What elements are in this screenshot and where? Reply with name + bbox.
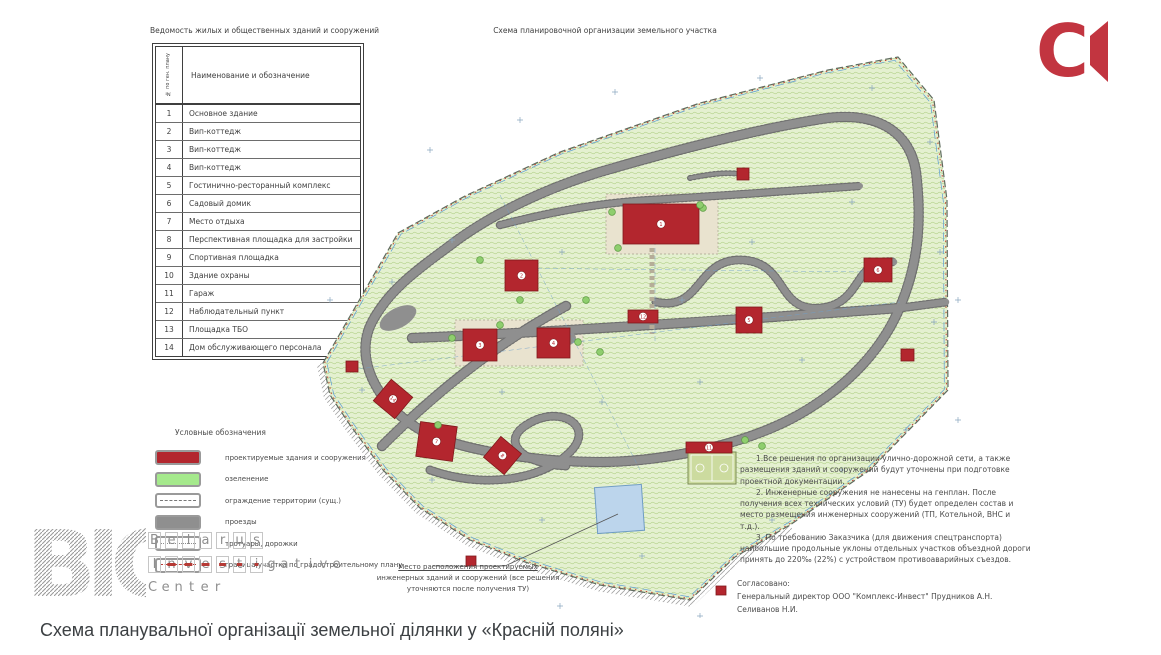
approval-name: Селиванов Н.И.: [737, 604, 992, 617]
watermark-letter: i: [306, 557, 315, 572]
notes-block: 1.Все решения по организации улично-доро…: [740, 453, 1032, 566]
swatch-buildings: [155, 450, 201, 465]
row-number: 12: [156, 303, 183, 320]
drawing-sheet: Ведомость жилых и общественных зданий и …: [0, 0, 1161, 655]
swatch-greenery: [155, 472, 201, 487]
building: 4: [537, 328, 570, 358]
tree-icon: [477, 257, 484, 264]
bic-logo: BIC: [26, 512, 146, 612]
watermark-letter: t: [293, 557, 302, 572]
engineering-site-pond: [594, 484, 644, 533]
watermark-letter: e: [165, 532, 178, 549]
tree-icon: [597, 349, 604, 356]
tree-icon: [609, 209, 616, 216]
svg-text:11: 11: [706, 445, 712, 451]
watermark-letter: e: [332, 557, 341, 572]
row-number: 5: [156, 177, 183, 194]
building: 3: [463, 329, 497, 361]
building: 11: [686, 442, 732, 453]
watermark-letter: u: [233, 532, 246, 549]
watermark-letter: s: [250, 532, 263, 549]
legend-item: проектируемые здания и сооружения: [155, 451, 455, 464]
watermark-letter: e: [200, 580, 209, 595]
svg-text:3: 3: [478, 343, 481, 349]
tree-icon: [759, 443, 766, 450]
swatch-fence: [155, 493, 201, 508]
legend-title: Условные обозначения: [175, 428, 455, 437]
watermark-line-belarus: Belarus: [148, 532, 345, 549]
annotation-line: Место расположения проектируемых: [398, 563, 537, 571]
watermark-letter: g: [267, 557, 276, 572]
svg-text:2: 2: [520, 273, 523, 279]
row-number: 3: [156, 141, 183, 158]
tree-icon: [742, 437, 749, 444]
bic-wordmark: Belarus Investigative Center: [148, 532, 345, 602]
row-number: 8: [156, 231, 183, 248]
site-plan-title: Схема планировочной организации земельно…: [430, 26, 780, 35]
building: 2: [505, 260, 538, 291]
watermark-letter: t: [233, 556, 246, 573]
watermark-letter: a: [199, 532, 212, 549]
legend-item: озеленение: [155, 473, 455, 486]
watermark-letter: n: [165, 556, 178, 573]
building-list-title: Ведомость жилых и общественных зданий и …: [150, 26, 380, 35]
row-number: 13: [156, 321, 183, 338]
row-number: 7: [156, 213, 183, 230]
row-number: 2: [156, 123, 183, 140]
building: 6: [864, 258, 892, 282]
tree-icon: [615, 245, 622, 252]
svg-text:6: 6: [876, 268, 879, 274]
watermark-letter: a: [280, 557, 289, 572]
building: [346, 361, 358, 372]
page-caption: Схема планувальної організації земельної…: [40, 620, 624, 641]
watermark-letter: r: [216, 532, 229, 549]
watermark-letter: n: [174, 580, 183, 595]
watermark-line-center: Center: [148, 580, 345, 595]
tree-icon: [575, 339, 582, 346]
engineering-annotation: Место расположения проектируемых инженер…: [372, 562, 564, 595]
watermark-letter: s: [216, 556, 229, 573]
watermark-letter: e: [199, 556, 212, 573]
legend-item: проезды: [155, 516, 455, 529]
svg-text:4: 4: [552, 341, 555, 347]
watermark-letter: e: [161, 580, 170, 595]
row-number: 11: [156, 285, 183, 302]
row-number: 9: [156, 249, 183, 266]
watermark-letter: B: [148, 532, 161, 549]
svg-text:5: 5: [747, 318, 750, 324]
building: 5: [736, 307, 762, 333]
row-number: 1: [156, 105, 183, 122]
tree-icon: [697, 202, 704, 209]
building: [716, 586, 726, 595]
svg-text:BIC: BIC: [26, 512, 146, 612]
building: 12: [628, 310, 658, 323]
ci-logo-flag-i: [1090, 21, 1108, 82]
watermark-line-investigative: Investigative: [148, 556, 345, 573]
note-1: 1.Все решения по организации улично-доро…: [740, 453, 1032, 487]
building: 1: [623, 204, 699, 244]
col-number-header: № по ген. плану: [156, 47, 183, 103]
ci-logo-letter-c: C: [1036, 18, 1089, 88]
row-number: 6: [156, 195, 183, 212]
note-3: 3. По требованию Заказчика (для движения…: [740, 532, 1032, 566]
building: [901, 349, 914, 361]
annotation-line: инженерных зданий и сооружений (все реше…: [377, 574, 560, 582]
row-number: 14: [156, 339, 183, 356]
approval-label: Согласовано:: [737, 578, 992, 591]
building: [737, 168, 749, 180]
tree-icon: [497, 322, 504, 329]
approval-block: Согласовано: Генеральный директор ООО "К…: [737, 578, 992, 616]
watermark-letter: l: [182, 532, 195, 549]
watermark-letter: v: [182, 556, 195, 573]
tree-icon: [583, 297, 590, 304]
swatch-driveways: [155, 515, 201, 530]
svg-text:12: 12: [640, 314, 646, 320]
svg-text:1: 1: [659, 222, 662, 228]
watermark-letter: i: [250, 556, 263, 573]
tree-icon: [449, 335, 456, 342]
watermark-letter: t: [187, 580, 196, 595]
legend-item: ограждение территории (сущ.): [155, 494, 455, 507]
watermark-letter: I: [148, 556, 161, 573]
watermark-letter: r: [213, 580, 222, 595]
ci-logo: C: [1036, 18, 1116, 88]
note-2: 2. Инженерные сооружения не нанесены на …: [740, 487, 1032, 532]
bic-watermark: BIC Belarus Investigative Center: [26, 512, 146, 616]
row-number: 10: [156, 267, 183, 284]
sports-court: [688, 452, 736, 484]
row-number: 4: [156, 159, 183, 176]
watermark-letter: C: [148, 580, 157, 595]
annotation-line: уточняются после получения ТУ): [407, 585, 529, 593]
approval-director: Генеральный директор ООО "Комплекс-Инвес…: [737, 591, 992, 604]
tree-icon: [517, 297, 524, 304]
watermark-letter: v: [319, 557, 328, 572]
